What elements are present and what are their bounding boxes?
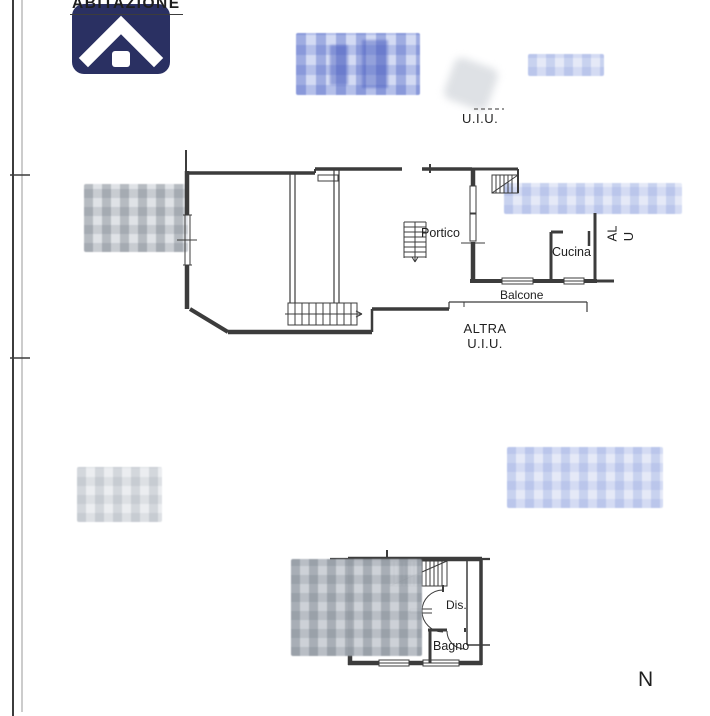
adjacent-unit-right-line1: AL	[604, 226, 619, 242]
room-label-portico: Portico	[421, 226, 460, 240]
unit-label-top: U.I.U.	[462, 111, 498, 126]
upper-plan-stairs-top-right	[492, 175, 518, 193]
upper-plan-walls	[177, 150, 518, 332]
adjacent-unit-label: ALTRA U.I.U.	[450, 321, 520, 351]
adjacent-unit-line2: U.I.U.	[450, 336, 520, 351]
page-title: ABITAZIONE	[70, 0, 183, 15]
scanned-floorplan-page: ABITAZIONE U.I.U. Portico Cucina Balcone…	[0, 0, 710, 716]
room-label-dis: Dis.	[446, 598, 467, 612]
north-indicator: N	[638, 668, 653, 692]
privacy-blur-patch	[291, 559, 422, 656]
page-edge-ruler	[10, 0, 30, 716]
room-label-cucina: Cucina	[552, 245, 591, 259]
upper-plan-stairs-bottom	[285, 303, 362, 325]
room-label-balcone: Balcone	[500, 288, 543, 302]
adjacent-unit-right-line2: U	[621, 232, 636, 241]
adjacent-unit-line1: ALTRA	[450, 321, 520, 336]
room-label-bagno: Bagno	[433, 639, 469, 653]
